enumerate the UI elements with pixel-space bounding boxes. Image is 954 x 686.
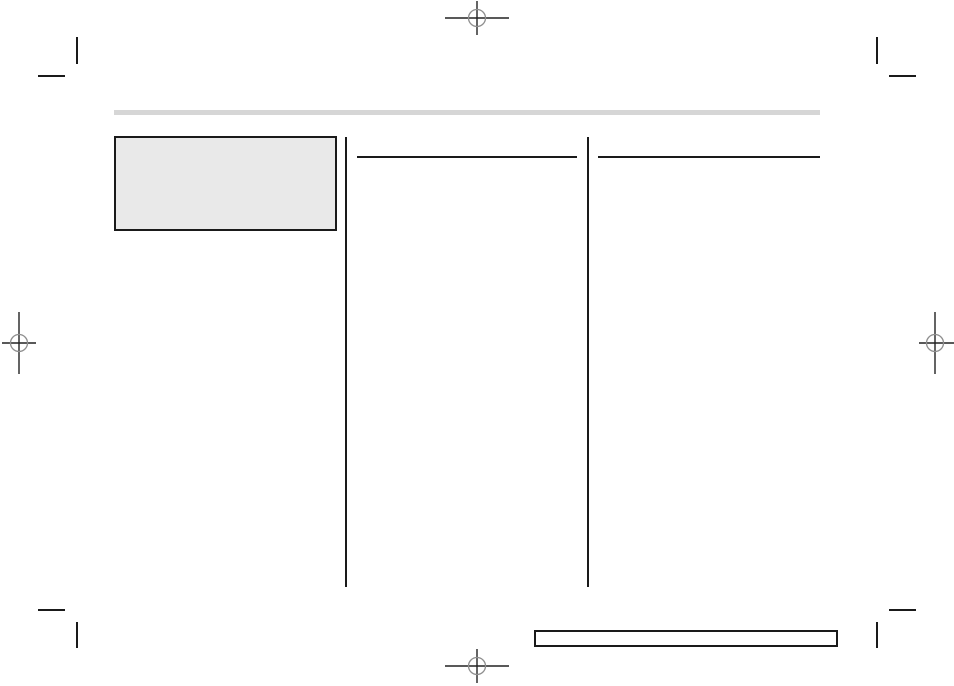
registration-mark-right-middle-icon <box>919 312 954 374</box>
left-column-divider-line <box>345 137 347 587</box>
right-column-divider-line <box>587 137 589 587</box>
header-rule-bar <box>114 110 820 115</box>
registration-mark-bottom-center-icon <box>445 649 509 683</box>
crop-mark-top-right-horizontal <box>889 75 916 77</box>
right-column-heading-rule <box>598 156 820 158</box>
registration-mark-top-center-icon <box>445 1 509 35</box>
crop-mark-bottom-left-horizontal <box>38 609 65 611</box>
page-canvas <box>0 0 954 686</box>
crop-mark-bottom-right-horizontal <box>889 609 916 611</box>
crop-mark-top-right-vertical <box>876 37 878 64</box>
footer-box <box>534 630 838 647</box>
placeholder-box <box>114 136 337 231</box>
crop-mark-bottom-right-vertical <box>876 622 878 648</box>
crop-mark-top-left-vertical <box>76 37 78 64</box>
left-column-heading-rule <box>357 156 577 158</box>
crop-mark-bottom-left-vertical <box>76 622 78 648</box>
registration-mark-left-middle-icon <box>2 312 36 374</box>
crop-mark-top-left-horizontal <box>38 75 65 77</box>
